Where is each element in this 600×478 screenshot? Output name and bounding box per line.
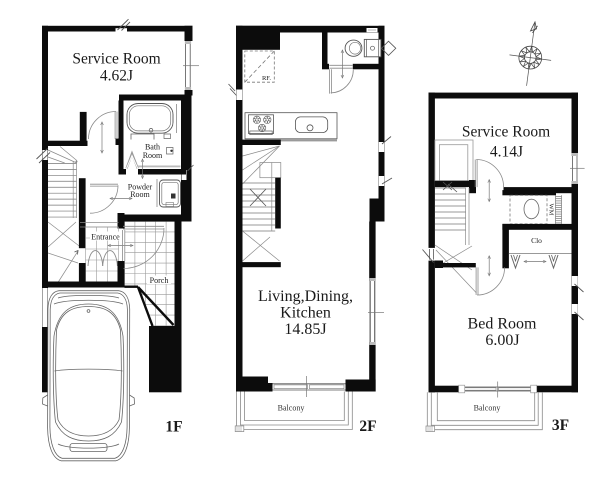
svg-text:1F: 1F [165, 419, 182, 436]
svg-text:Room: Room [130, 190, 150, 199]
svg-text:Balcony: Balcony [278, 404, 305, 413]
svg-text:Entrance: Entrance [91, 233, 120, 242]
svg-text:Service Room: Service Room [462, 124, 550, 141]
svg-text:3F: 3F [552, 417, 569, 434]
svg-text:WM: WM [548, 204, 555, 216]
svg-text:Room: Room [143, 151, 163, 160]
svg-text:Kitchen: Kitchen [280, 305, 331, 322]
svg-text:Balcony: Balcony [474, 404, 501, 413]
svg-text:RF.: RF. [262, 75, 271, 82]
svg-text:14.85J: 14.85J [284, 321, 326, 338]
svg-text:4.62J: 4.62J [100, 68, 133, 85]
svg-text:Service Room: Service Room [72, 51, 160, 68]
svg-text:Living,Dining,: Living,Dining, [258, 288, 353, 305]
svg-text:Clo: Clo [531, 236, 542, 245]
svg-text:4.14J: 4.14J [490, 144, 523, 161]
svg-text:Porch: Porch [150, 276, 169, 285]
svg-text:Bed Room: Bed Room [468, 316, 537, 333]
svg-text:6.00J: 6.00J [485, 332, 519, 349]
svg-text:2F: 2F [359, 418, 376, 435]
